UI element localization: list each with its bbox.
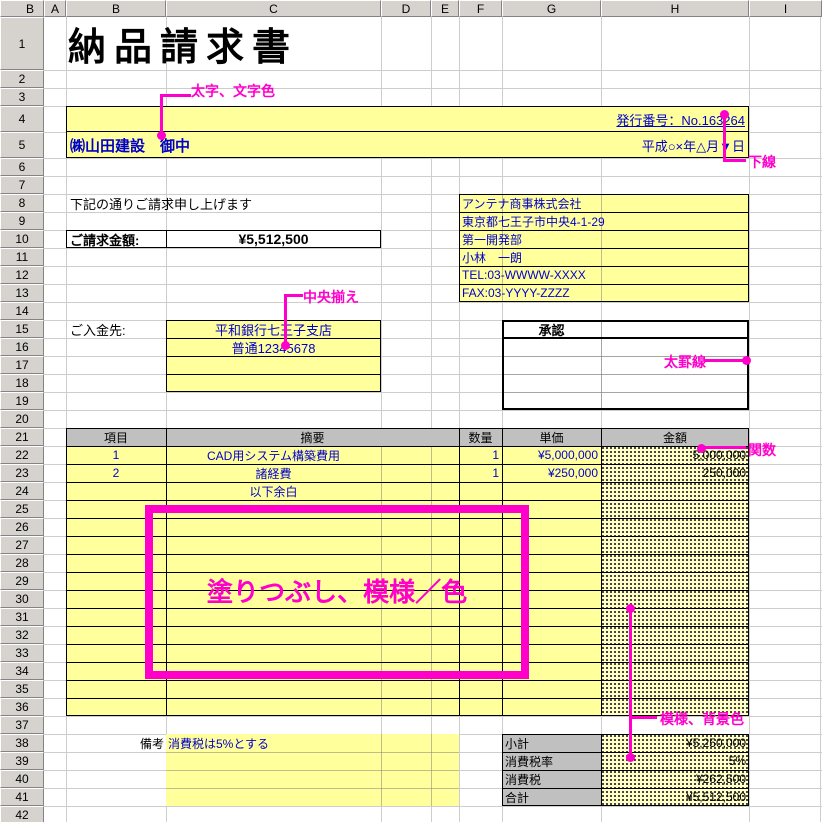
sender-line-0[interactable]: アンテナ商事株式会社 [462, 194, 747, 212]
row-header-26[interactable]: 26 [0, 518, 44, 536]
gridline-h [44, 88, 822, 89]
row-header-24[interactable]: 24 [0, 482, 44, 500]
annotation-dot [281, 341, 290, 350]
annotation-dot [626, 753, 635, 762]
notes-label-cell[interactable]: 備考 [66, 734, 166, 752]
notes-text-cell[interactable]: 消費税は5%とする [168, 734, 456, 752]
gridline-h [44, 158, 822, 159]
summary-value-2[interactable]: ¥262,500 [601, 770, 746, 788]
summary-value-0[interactable]: ¥5,250,000 [601, 734, 746, 752]
invoice-title[interactable]: 納品請求書 [68, 17, 398, 70]
row-header-34[interactable]: 34 [0, 662, 44, 680]
border-items-row [66, 680, 749, 681]
row-header-35[interactable]: 35 [0, 680, 44, 698]
items-row-0-cell-1[interactable]: CAD用システム構築費用 [166, 446, 381, 464]
row-header-38[interactable]: 38 [0, 734, 44, 752]
row-header-15[interactable]: 15 [0, 320, 44, 338]
row-header-41[interactable]: 41 [0, 788, 44, 806]
gridline-h [44, 302, 822, 303]
items-header-3[interactable]: 単価 [502, 428, 601, 446]
gridline-notes [166, 770, 459, 771]
summary-label-1[interactable]: 消費税率 [505, 752, 599, 770]
annotation-line [723, 114, 726, 162]
items-row-0-cell-2[interactable]: 1 [459, 446, 499, 464]
gridline-notes [166, 788, 459, 789]
row-header-16[interactable]: 16 [0, 338, 44, 356]
annotation-line [629, 608, 632, 758]
col-header-B-1[interactable]: B [66, 0, 166, 17]
corner-header[interactable]: B [0, 0, 44, 17]
row-header-1[interactable]: 1 [0, 17, 44, 70]
annotation-line [723, 159, 746, 162]
items-row-0-cell-0[interactable]: 1 [66, 446, 166, 464]
annotation-line [704, 359, 744, 362]
gridline-h [44, 410, 822, 411]
blank-note-cell[interactable]: 以下余白 [166, 482, 381, 500]
gridline-notes [166, 752, 459, 753]
date-cell[interactable]: 平成○×年△月▼日 [560, 132, 745, 158]
payment-bank-cell[interactable]: 平和銀行七王子支店 [166, 320, 381, 338]
row-header-40[interactable]: 40 [0, 770, 44, 788]
row-header-27[interactable]: 27 [0, 536, 44, 554]
row-header-42[interactable]: 42 [0, 806, 44, 822]
row-header-17[interactable]: 17 [0, 356, 44, 374]
border-items-row [66, 500, 749, 501]
col-header-D-3[interactable]: D [381, 0, 431, 17]
row-header-3[interactable]: 3 [0, 88, 44, 106]
row-header-39[interactable]: 39 [0, 752, 44, 770]
row-header-23[interactable]: 23 [0, 464, 44, 482]
summary-value-3[interactable]: ¥5,512,500 [601, 788, 746, 806]
row-header-9[interactable]: 9 [0, 212, 44, 230]
col-header-C-2[interactable]: C [166, 0, 381, 17]
gridline-v [749, 17, 750, 822]
sender-line-4[interactable]: TEL:03-WWWW-XXXX [462, 266, 747, 284]
summary-label-2[interactable]: 消費税 [505, 770, 599, 788]
items-row-1-cell-2[interactable]: 1 [459, 464, 499, 482]
border-payment-row [166, 374, 381, 375]
gridline-h [44, 806, 822, 807]
items-row-1-cell-4[interactable]: 250,000 [601, 464, 746, 482]
annotation-fill-pattern: 塗りつぶし、模様／色 [145, 572, 529, 609]
annotation-line [631, 716, 657, 719]
row-header-28[interactable]: 28 [0, 554, 44, 572]
items-header-4[interactable]: 金額 [601, 428, 749, 446]
items-row-1-cell-0[interactable]: 2 [66, 464, 166, 482]
row-header-4[interactable]: 4 [0, 106, 44, 132]
row-header-7[interactable]: 7 [0, 176, 44, 194]
summary-label-3[interactable]: 合計 [505, 788, 599, 806]
annotation-line [160, 94, 191, 97]
sender-line-3[interactable]: 小林 一朗 [462, 248, 747, 266]
row-header-2[interactable]: 2 [0, 70, 44, 88]
row-header-20[interactable]: 20 [0, 410, 44, 428]
items-row-0-cell-3[interactable]: ¥5,000,000 [502, 446, 598, 464]
items-header-0[interactable]: 項目 [66, 428, 166, 446]
annotation-line [703, 446, 746, 449]
col-header-G-6[interactable]: G [502, 0, 601, 17]
row-header-13[interactable]: 13 [0, 284, 44, 302]
gridline-h [44, 176, 822, 177]
annotation-line [284, 294, 287, 346]
annotation-pattern-bg: 模様、背景色 [660, 709, 744, 729]
row-header-29[interactable]: 29 [0, 572, 44, 590]
row-header-30[interactable]: 30 [0, 590, 44, 608]
row-header-11[interactable]: 11 [0, 248, 44, 266]
row-header-37[interactable]: 37 [0, 716, 44, 734]
row-header-33[interactable]: 33 [0, 644, 44, 662]
annotation-line [160, 94, 163, 135]
border-items-row [66, 698, 749, 699]
gridline-v [820, 17, 821, 822]
row-header-5[interactable]: 5 [0, 132, 44, 158]
spreadsheet: B ABCDEFGHI 1234567891011121314151617181… [0, 0, 822, 822]
row-header-8[interactable]: 8 [0, 194, 44, 212]
billing-amount-cell[interactable]: ¥5,512,500 [166, 230, 381, 248]
row-header-10[interactable]: 10 [0, 230, 44, 248]
row-header-32[interactable]: 32 [0, 626, 44, 644]
annotation-function: 関数 [748, 440, 776, 460]
row-header-36[interactable]: 36 [0, 698, 44, 716]
items-header-1[interactable]: 摘要 [166, 428, 459, 446]
row-header-31[interactable]: 31 [0, 608, 44, 626]
col-header-F-5[interactable]: F [459, 0, 502, 17]
summary-label-0[interactable]: 小計 [505, 734, 599, 752]
items-row-1-cell-3[interactable]: ¥250,000 [502, 464, 598, 482]
row-header-19[interactable]: 19 [0, 392, 44, 410]
row-header-22[interactable]: 22 [0, 446, 44, 464]
recipient-cell[interactable]: ㈱山田建設 御中 [70, 132, 370, 158]
approval-header-cell[interactable]: 承認 [502, 320, 601, 338]
summary-value-1[interactable]: 5% [601, 752, 746, 770]
col-header-E-4[interactable]: E [431, 0, 459, 17]
items-row-1-cell-1[interactable]: 諸経費 [166, 464, 381, 482]
annotation-bold-color: 太字、文字色 [191, 81, 275, 101]
billing-label-cell[interactable]: ご請求金額: [70, 230, 164, 248]
col-header-H-7[interactable]: H [601, 0, 749, 17]
row-header-14[interactable]: 14 [0, 302, 44, 320]
col-header-I-8[interactable]: I [749, 0, 822, 17]
annotation-underline: 下線 [748, 152, 776, 172]
items-header-2[interactable]: 数量 [459, 428, 502, 446]
sender-line-5[interactable]: FAX:03-YYYY-ZZZZ [462, 284, 747, 302]
col-header-A-0[interactable]: A [44, 0, 66, 17]
row-header-18[interactable]: 18 [0, 374, 44, 392]
row-header-25[interactable]: 25 [0, 500, 44, 518]
payment-account-cell[interactable]: 普通12345678 [166, 338, 381, 356]
sender-line-1[interactable]: 東京都七王子市中央4-1-29 [462, 212, 747, 230]
annotation-center-align: 中央揃え [303, 287, 359, 307]
sender-line-2[interactable]: 第一開発部 [462, 230, 747, 248]
row-header-6[interactable]: 6 [0, 158, 44, 176]
annotation-dot [157, 131, 166, 140]
annotation-dot [742, 356, 751, 365]
payment-label-cell[interactable]: ご入金先: [70, 320, 164, 338]
row-header-21[interactable]: 21 [0, 428, 44, 446]
annotation-thick-border: 太罫線 [664, 352, 706, 372]
row-header-12[interactable]: 12 [0, 266, 44, 284]
intro-cell[interactable]: 下記の通りご請求申し上げます [70, 194, 390, 212]
